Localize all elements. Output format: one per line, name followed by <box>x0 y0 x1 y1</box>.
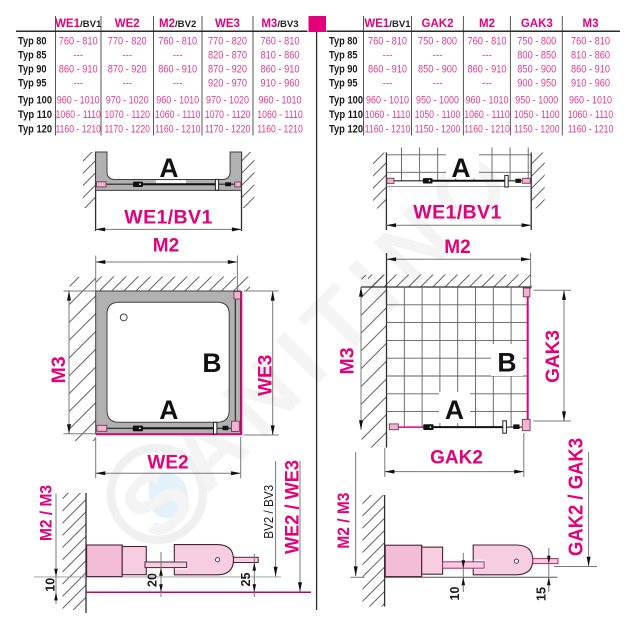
svg-text:920 - 970: 920 - 970 <box>208 78 247 90</box>
svg-text:WE2: WE2 <box>115 18 140 30</box>
svg-text:1050 - 1100: 1050 - 1100 <box>415 109 461 121</box>
svg-text:860 - 910: 860 - 910 <box>468 64 507 76</box>
svg-text:GAK2: GAK2 <box>422 18 454 30</box>
svg-text:---: --- <box>173 79 183 90</box>
svg-text:1160 - 1210: 1160 - 1210 <box>55 124 101 136</box>
svg-text:Typ 110: Typ 110 <box>329 109 363 121</box>
svg-text:WE2: WE2 <box>147 453 188 474</box>
svg-text:BV2 / BV3: BV2 / BV3 <box>262 485 276 539</box>
svg-text:---: --- <box>383 79 393 90</box>
svg-text:1160 - 1210: 1160 - 1210 <box>155 124 201 136</box>
svg-text:770 - 820: 770 - 820 <box>108 36 147 48</box>
svg-text:970 - 1020: 970 - 1020 <box>106 95 149 107</box>
svg-text:M2/BV2: M2/BV2 <box>159 18 196 30</box>
svg-text:Typ 100: Typ 100 <box>329 95 363 107</box>
svg-text:10: 10 <box>43 578 57 592</box>
svg-text:960 - 1010: 960 - 1010 <box>366 95 409 107</box>
svg-text:1160 - 1210: 1160 - 1210 <box>257 124 303 136</box>
svg-text:M3: M3 <box>583 18 599 30</box>
svg-text:950 - 1000: 950 - 1000 <box>515 95 558 107</box>
svg-text:760 - 810: 760 - 810 <box>368 36 407 48</box>
svg-text:760 - 810: 760 - 810 <box>261 36 300 48</box>
svg-text:WE3: WE3 <box>255 355 276 396</box>
svg-text:1060 - 1110: 1060 - 1110 <box>464 109 510 121</box>
svg-text:10: 10 <box>448 587 462 601</box>
svg-text:1060 - 1110: 1060 - 1110 <box>55 109 101 121</box>
svg-text:25: 25 <box>239 573 253 587</box>
svg-text:---: --- <box>482 79 492 90</box>
svg-text:Typ 100: Typ 100 <box>18 95 52 107</box>
svg-text:M2 / M3: M2 / M3 <box>334 493 353 549</box>
svg-text:1160 - 1210: 1160 - 1210 <box>464 124 510 136</box>
svg-text:---: --- <box>433 79 443 90</box>
svg-text:GAK2: GAK2 <box>430 448 483 469</box>
svg-text:---: --- <box>173 51 183 62</box>
svg-text:---: --- <box>122 51 132 62</box>
svg-text:950 - 1000: 950 - 1000 <box>416 95 459 107</box>
svg-text:15: 15 <box>534 587 548 601</box>
svg-text:Typ 80: Typ 80 <box>18 36 47 48</box>
svg-text:860 - 910: 860 - 910 <box>59 64 98 76</box>
svg-text:GAK2 / GAK3: GAK2 / GAK3 <box>566 438 588 556</box>
svg-text:M3/BV3: M3/BV3 <box>261 18 298 30</box>
svg-text:---: --- <box>482 51 492 62</box>
svg-text:760 - 810: 760 - 810 <box>59 36 98 48</box>
svg-text:B: B <box>202 348 221 378</box>
svg-text:1170 - 1220: 1170 - 1220 <box>104 124 150 136</box>
svg-text:960 - 1010: 960 - 1010 <box>569 95 612 107</box>
svg-text:960 - 1010: 960 - 1010 <box>156 95 199 107</box>
svg-text:M2: M2 <box>479 18 495 30</box>
svg-text:A: A <box>159 395 178 425</box>
svg-text:Typ 90: Typ 90 <box>18 64 47 76</box>
svg-text:---: --- <box>433 51 443 62</box>
svg-text:Typ 120: Typ 120 <box>329 124 363 136</box>
svg-text:750 - 800: 750 - 800 <box>517 36 556 48</box>
svg-text:M2 / M3: M2 / M3 <box>36 485 55 541</box>
svg-text:WE1/BV1: WE1/BV1 <box>124 207 212 229</box>
svg-text:WE1/BV1: WE1/BV1 <box>364 18 411 30</box>
svg-text:1070 - 1120: 1070 - 1120 <box>205 109 251 121</box>
svg-text:850 - 900: 850 - 900 <box>517 64 556 76</box>
svg-text:GAK3: GAK3 <box>521 18 553 30</box>
svg-text:M2: M2 <box>153 236 179 257</box>
svg-text:---: --- <box>73 51 83 62</box>
svg-text:A: A <box>159 153 178 183</box>
svg-text:GAK3: GAK3 <box>543 330 564 383</box>
svg-text:B: B <box>497 348 516 378</box>
svg-text:1150 - 1200: 1150 - 1200 <box>415 124 461 136</box>
svg-text:M3: M3 <box>48 356 70 383</box>
svg-text:870 - 920: 870 - 920 <box>208 64 247 76</box>
svg-text:760 - 810: 760 - 810 <box>468 36 507 48</box>
svg-text:760 - 810: 760 - 810 <box>571 36 610 48</box>
svg-text:960 - 1010: 960 - 1010 <box>466 95 509 107</box>
svg-text:910 - 960: 910 - 960 <box>261 78 300 90</box>
svg-text:860 - 910: 860 - 910 <box>571 64 610 76</box>
svg-text:1170 - 1220: 1170 - 1220 <box>205 124 251 136</box>
svg-text:910 - 960: 910 - 960 <box>571 78 610 90</box>
svg-text:A: A <box>451 153 470 183</box>
svg-text:960 - 1010: 960 - 1010 <box>57 95 100 107</box>
svg-text:Typ 90: Typ 90 <box>329 64 358 76</box>
svg-text:860 - 910: 860 - 910 <box>158 64 197 76</box>
svg-text:870 - 920: 870 - 920 <box>108 64 147 76</box>
svg-text:960 - 1010: 960 - 1010 <box>259 95 302 107</box>
svg-text:900 - 950: 900 - 950 <box>517 78 556 90</box>
svg-text:750 - 800: 750 - 800 <box>418 36 457 48</box>
svg-text:1160 - 1210: 1160 - 1210 <box>365 124 411 136</box>
svg-text:1050 - 1100: 1050 - 1100 <box>514 109 560 121</box>
svg-text:1150 - 1200: 1150 - 1200 <box>514 124 560 136</box>
svg-text:Typ 85: Typ 85 <box>18 50 47 62</box>
svg-text:A: A <box>445 395 464 425</box>
svg-text:M3: M3 <box>336 347 358 374</box>
svg-text:860 - 910: 860 - 910 <box>368 64 407 76</box>
svg-text:---: --- <box>122 79 132 90</box>
svg-text:WE1/BV1: WE1/BV1 <box>55 18 102 30</box>
svg-text:WE3: WE3 <box>215 18 240 30</box>
svg-text:WE1/BV1: WE1/BV1 <box>413 202 501 224</box>
svg-text:820 - 870: 820 - 870 <box>208 50 247 62</box>
svg-text:800 - 850: 800 - 850 <box>517 50 556 62</box>
svg-text:760 - 810: 760 - 810 <box>158 36 197 48</box>
svg-text:M2: M2 <box>444 237 470 258</box>
svg-text:Typ 85: Typ 85 <box>329 50 358 62</box>
svg-text:20: 20 <box>145 573 159 587</box>
svg-text:Typ 95: Typ 95 <box>18 78 47 90</box>
svg-text:810 - 860: 810 - 860 <box>261 50 300 62</box>
svg-text:---: --- <box>383 51 393 62</box>
svg-text:1060 - 1110: 1060 - 1110 <box>155 109 201 121</box>
svg-text:Typ 120: Typ 120 <box>18 124 52 136</box>
svg-text:1160 - 1210: 1160 - 1210 <box>568 124 614 136</box>
svg-text:1060 - 1110: 1060 - 1110 <box>257 109 303 121</box>
svg-text:Typ 95: Typ 95 <box>329 78 358 90</box>
svg-text:970 - 1020: 970 - 1020 <box>206 95 249 107</box>
svg-text:850 - 900: 850 - 900 <box>418 64 457 76</box>
svg-text:Typ 110: Typ 110 <box>18 109 52 121</box>
svg-text:810 - 860: 810 - 860 <box>571 50 610 62</box>
svg-text:770 - 820: 770 - 820 <box>208 36 247 48</box>
svg-text:860 - 910: 860 - 910 <box>261 64 300 76</box>
svg-text:Typ 80: Typ 80 <box>329 36 358 48</box>
svg-text:1070 - 1120: 1070 - 1120 <box>104 109 150 121</box>
svg-text:1060 - 1110: 1060 - 1110 <box>365 109 411 121</box>
svg-text:1060 - 1110: 1060 - 1110 <box>568 109 614 121</box>
svg-text:---: --- <box>73 79 83 90</box>
